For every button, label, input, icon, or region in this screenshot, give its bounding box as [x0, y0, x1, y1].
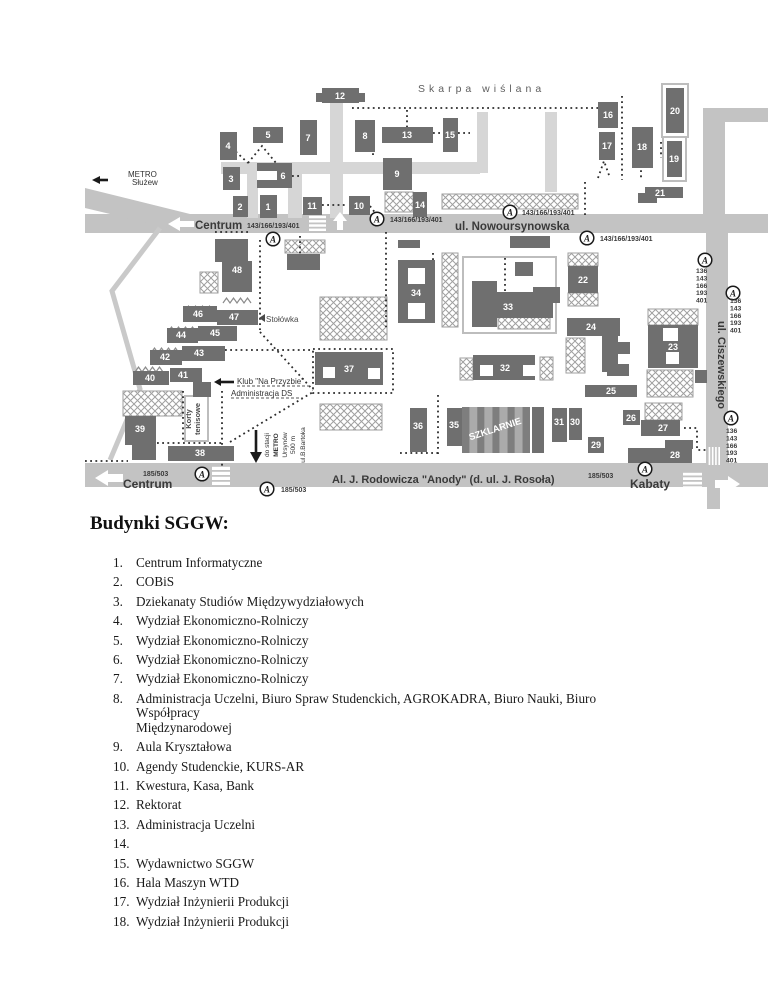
building-number-27: 27: [658, 423, 668, 433]
legend-item-number: 18.: [113, 915, 136, 930]
legend-item-text: Wydawnictwo SGGW: [136, 857, 641, 872]
bus-routes-list: 136: [726, 428, 738, 435]
bus-routes-list: 143: [730, 305, 742, 312]
building-number-36: 36: [413, 421, 423, 431]
legend-item-number: 1.: [113, 556, 136, 571]
bus-stop-letter: A: [198, 470, 205, 480]
bus-routes-label: 143/166/193/401: [600, 236, 653, 243]
building-number-21: 21: [655, 188, 665, 198]
legend-item-text: Wydział Ekonomiczno-Rolniczy: [136, 672, 641, 687]
building-number-41: 41: [178, 370, 188, 380]
direction-kabaty: Kabaty: [630, 477, 670, 491]
legend-item-number: 13.: [113, 818, 136, 833]
hatched-area: [123, 391, 182, 416]
pedestrian-crossing: [212, 482, 230, 485]
building-number-7: 7: [305, 133, 310, 143]
document-page: 1234567891011121314151617181920212223242…: [0, 0, 768, 994]
building-number-6: 6: [280, 171, 285, 181]
building-28: [628, 448, 692, 463]
legend-item: 8.Administracja Uczelni, Biuro Spraw Stu…: [113, 692, 653, 736]
label-klub-na-przyzbie: Klub "Na Przyzbie": [237, 377, 304, 386]
legend-item-number: 10.: [113, 760, 136, 775]
bus-routes-list: 193: [696, 290, 708, 297]
legend-item: 10.Agendy Studenckie, KURS-AR: [113, 760, 653, 775]
building-number-26: 26: [626, 413, 636, 423]
hatched-area: [647, 370, 693, 397]
legend-item: 11.Kwestura, Kasa, Bank: [113, 779, 653, 794]
routes-bottom-mid: 185/503: [588, 473, 613, 480]
klub-pointer-arrow: [214, 378, 221, 386]
routes-bottom-left: 185/503: [143, 471, 168, 478]
building-number-17: 17: [602, 141, 612, 151]
building-legend: 1.Centrum Informatyczne2.COBiS3.Dziekana…: [113, 556, 653, 934]
legend-item-text: Wydział Inżynierii Produkcji: [136, 915, 641, 930]
hatched-area: [540, 357, 553, 380]
building-28: [665, 440, 693, 449]
hatched-area: [320, 297, 387, 340]
legend-item-number: 17.: [113, 895, 136, 910]
building-number-25: 25: [606, 386, 616, 396]
legend-item-number: 6.: [113, 653, 136, 668]
bus-stop-letter: A: [729, 289, 736, 299]
pedestrian-crossing: [709, 447, 711, 465]
building-24: [607, 364, 629, 376]
building-12: [359, 93, 365, 102]
building-number-37: 37: [344, 364, 354, 374]
legend-item: 12.Rektorat: [113, 798, 653, 813]
hatched-area: [498, 317, 550, 329]
hatched-area: [566, 338, 585, 373]
legend-item-text: Aula Kryształowa: [136, 740, 641, 755]
building-number-47: 47: [229, 312, 239, 322]
pedestrian-crossing: [683, 486, 702, 489]
building-number-8: 8: [362, 131, 367, 141]
road: [707, 487, 720, 509]
legend-item: 2.COBiS: [113, 575, 653, 590]
greenhouse-stripes: [522, 407, 530, 453]
internal-road: [330, 103, 343, 218]
pedestrian-crossing: [212, 477, 230, 480]
road: [703, 108, 725, 218]
legend-item-text: Kwestura, Kasa, Bank: [136, 779, 641, 794]
bus-routes-label: 143/166/193/401: [522, 210, 575, 217]
building-number-16: 16: [603, 110, 613, 120]
direction-centrum-bottom: Centrum: [123, 477, 172, 491]
bus-routes-label: 143/166/193/401: [390, 217, 443, 224]
legend-item-text: Centrum Informatyczne: [136, 556, 641, 571]
building-number-29: 29: [591, 440, 601, 450]
label-stolowka: Stołówka: [266, 315, 299, 324]
internal-road: [545, 112, 557, 192]
legend-item-number: 8.: [113, 692, 136, 736]
stolowka-pointer: [259, 314, 265, 322]
legend-item: 3.Dziekanaty Studiów Międzywydziałowych: [113, 595, 653, 610]
legend-item: 5.Wydział Ekonomiczno-Rolniczy: [113, 634, 653, 649]
bus-routes-list: 166: [726, 443, 738, 450]
pedestrian-crossing: [683, 477, 702, 480]
pedestrian-crossing: [309, 220, 326, 222]
label-korty: Korty: [184, 408, 193, 428]
legend-item: 7.Wydział Ekonomiczno-Rolniczy: [113, 672, 653, 687]
legend-item-text: Wydział Ekonomiczno-Rolniczy: [136, 634, 641, 649]
label-skarpa-wislana: Skarpa wiślana: [418, 83, 545, 95]
building-24: [618, 342, 630, 354]
street-anody: Al. J. Rodowicza "Anody" (d. ul. J. Roso…: [332, 474, 555, 486]
bus-routes-list: 193: [730, 320, 742, 327]
hatched-area: [285, 240, 325, 253]
bus-routes-list: 401: [726, 458, 738, 465]
building-number-4: 4: [225, 141, 230, 151]
building-number-31: 31: [554, 417, 564, 427]
hatched-area: [385, 192, 413, 212]
bus-stop-letter: A: [373, 215, 380, 225]
direction-centrum-top: Centrum: [195, 220, 242, 232]
building-12: [316, 93, 322, 102]
bus-stop-letter: A: [506, 208, 513, 218]
building-number-18: 18: [637, 142, 647, 152]
hatched-area: [648, 309, 698, 325]
building-33: [472, 281, 497, 327]
building-courtyard: [666, 352, 679, 364]
building-courtyard: [663, 328, 678, 341]
building-number-46: 46: [193, 309, 203, 319]
building-number-45: 45: [210, 328, 220, 338]
metro-sluzew-arrow: [92, 176, 100, 184]
building-number-9: 9: [394, 169, 399, 179]
hatched-area: [568, 253, 598, 266]
pedestrian-crossing: [683, 473, 702, 476]
building-number-44: 44: [176, 330, 186, 340]
building-number-43: 43: [194, 348, 204, 358]
building-unnumbered: [398, 240, 420, 248]
building-number-12: 12: [335, 91, 345, 101]
building-courtyard: [480, 365, 493, 376]
legend-item: 4.Wydział Ekonomiczno-Rolniczy: [113, 614, 653, 629]
street-nowoursynowska: ul. Nowoursynowska: [455, 221, 570, 233]
bus-stop-letter: A: [583, 234, 590, 244]
legend-item-text: [136, 837, 641, 852]
building-39: [132, 445, 156, 460]
legend-item-text: Wydział Ekonomiczno-Rolniczy: [136, 653, 641, 668]
pedestrian-crossing: [718, 447, 720, 465]
internal-road: [477, 112, 488, 173]
legend-item-text: Administracja Uczelni: [136, 818, 641, 833]
bus-routes-list: 401: [696, 298, 708, 305]
building-33: [515, 262, 533, 276]
legend-item-text: Dziekanaty Studiów Międzywydziałowych: [136, 595, 641, 610]
building-unnumbered: [287, 254, 320, 270]
label-metro-ursynow: METRO: [273, 433, 280, 456]
bus-stop-letter: A: [727, 414, 734, 424]
building-number-20: 20: [670, 106, 680, 116]
label-do-stacji: do stacji: [264, 433, 271, 457]
dotted-path: [248, 146, 276, 163]
legend-item: 1.Centrum Informatyczne: [113, 556, 653, 571]
hatched-area: [460, 358, 473, 380]
building-number-1: 1: [265, 202, 270, 212]
building-number-42: 42: [160, 352, 170, 362]
legend-item-text: Hala Maszyn WTD: [136, 876, 641, 891]
legend-item: 18.Wydział Inżynierii Produkcji: [113, 915, 653, 930]
legend-item-number: 11.: [113, 779, 136, 794]
building-courtyard: [523, 365, 536, 376]
bus-routes-list: 136: [730, 298, 742, 305]
building-number-14: 14: [415, 200, 425, 210]
bus-routes-list: 143: [726, 435, 738, 442]
hatched-area: [645, 403, 682, 420]
building-number-24: 24: [586, 322, 596, 332]
building-courtyard: [323, 367, 335, 378]
building-number-5: 5: [265, 130, 270, 140]
building-number-30: 30: [570, 417, 580, 427]
building-number-11: 11: [307, 201, 317, 211]
bus-routes-list: 143: [696, 275, 708, 282]
greenhouse-stripes: [515, 407, 523, 453]
bus-routes-list: 193: [726, 450, 738, 457]
legend-item-text: Agendy Studenckie, KURS-AR: [136, 760, 641, 775]
legend-item-number: 2.: [113, 575, 136, 590]
bus-routes-list: 166: [696, 283, 708, 290]
pedestrian-crossing: [309, 216, 326, 218]
label-sluzew: Służew: [132, 178, 158, 187]
legend-item-number: 7.: [113, 672, 136, 687]
building-number-34: 34: [411, 288, 421, 298]
pedestrian-crossing: [212, 472, 230, 475]
road: [713, 108, 768, 122]
legend-item-number: 12.: [113, 798, 136, 813]
label-tenisowe: tenisowe: [193, 403, 202, 435]
page-title: Budynki SGGW:: [90, 513, 229, 535]
building-number-39: 39: [135, 424, 145, 434]
bus-stop-letter: A: [701, 256, 708, 266]
metro-ursynow-arrow: [250, 452, 262, 463]
building-number-38: 38: [195, 448, 205, 458]
building-33: [533, 287, 560, 303]
legend-item: 17.Wydział Inżynierii Produkcji: [113, 895, 653, 910]
legend-item: 16.Hala Maszyn WTD: [113, 876, 653, 891]
legend-item-number: 15.: [113, 857, 136, 872]
legend-item-text: Wydział Ekonomiczno-Rolniczy: [136, 614, 641, 629]
building-number-2: 2: [237, 202, 242, 212]
building-courtyard: [257, 171, 277, 180]
building-number-3: 3: [228, 174, 233, 184]
label-ursynow: Ursynów: [282, 432, 289, 458]
building-number-22: 22: [578, 275, 588, 285]
building-number-33: 33: [503, 302, 513, 312]
legend-item-number: 16.: [113, 876, 136, 891]
dotted-path: [598, 161, 610, 178]
building-number-35: 35: [449, 420, 459, 430]
building-courtyard: [408, 268, 425, 284]
legend-item-text: COBiS: [136, 575, 641, 590]
label-bartoka: ul.B.Bartoka: [300, 427, 307, 463]
hatched-area: [200, 272, 218, 293]
legend-item: 6.Wydział Ekonomiczno-Rolniczy: [113, 653, 653, 668]
legend-item-text: Rektorat: [136, 798, 641, 813]
pedestrian-crossing: [212, 467, 230, 470]
building-courtyard: [408, 303, 425, 319]
label-administracja-ds: Administracja DS: [231, 389, 292, 398]
bus-routes-list: 166: [730, 313, 742, 320]
building-number-15: 15: [445, 130, 455, 140]
hatched-area: [568, 293, 598, 306]
awning-zigzag: [223, 298, 251, 303]
building-number-10: 10: [354, 201, 364, 211]
bus-stop-letter: A: [269, 235, 276, 245]
pedestrian-crossing: [712, 447, 714, 465]
building-number-28: 28: [670, 450, 680, 460]
legend-item-number: 4.: [113, 614, 136, 629]
pedestrian-crossing: [715, 447, 717, 465]
bus-routes-list: 136: [696, 268, 708, 275]
legend-item: 13.Administracja Uczelni: [113, 818, 653, 833]
building-number-32: 32: [500, 363, 510, 373]
bus-stop-letter: A: [641, 465, 648, 475]
label-500m: 500 m: [290, 436, 297, 454]
legend-item-number: 14.: [113, 837, 136, 852]
hatched-area: [442, 253, 458, 327]
pedestrian-crossing: [309, 224, 326, 226]
building-unnumbered: [510, 236, 550, 248]
pedestrian-crossing: [309, 229, 326, 231]
legend-item-text: Wydział Inżynierii Produkcji: [136, 895, 641, 910]
legend-item: 15.Wydawnictwo SGGW: [113, 857, 653, 872]
internal-road: [247, 174, 258, 218]
routes-top-left: 143/166/193/401: [247, 223, 300, 230]
pedestrian-crossing: [683, 482, 702, 485]
street-ciszewskiego: ul. Ciszewskiego: [715, 321, 727, 409]
bus-routes-list: 401: [730, 328, 742, 335]
campus-map: 1234567891011121314151617181920212223242…: [85, 75, 768, 510]
building-unnumbered: [532, 407, 544, 453]
legend-item: 14.: [113, 837, 653, 852]
building-number-23: 23: [668, 342, 678, 352]
building-41: [193, 382, 211, 397]
greenhouse-stripes: [462, 407, 470, 453]
building-number-13: 13: [402, 130, 412, 140]
legend-item: 9.Aula Kryształowa: [113, 740, 653, 755]
legend-item-text: Administracja Uczelni, Biuro Spraw Stude…: [136, 692, 641, 736]
legend-item-number: 5.: [113, 634, 136, 649]
building-48: [215, 239, 248, 262]
bus-stop-letter: A: [263, 485, 270, 495]
legend-item-number: 9.: [113, 740, 136, 755]
building-number-40: 40: [145, 373, 155, 383]
hatched-area: [320, 404, 382, 430]
building-courtyard: [368, 368, 380, 379]
building-number-19: 19: [669, 154, 679, 164]
building-unnumbered: [695, 370, 707, 383]
legend-item-number: 3.: [113, 595, 136, 610]
building-number-48: 48: [232, 265, 242, 275]
bus-routes-label: 185/503: [281, 487, 306, 494]
